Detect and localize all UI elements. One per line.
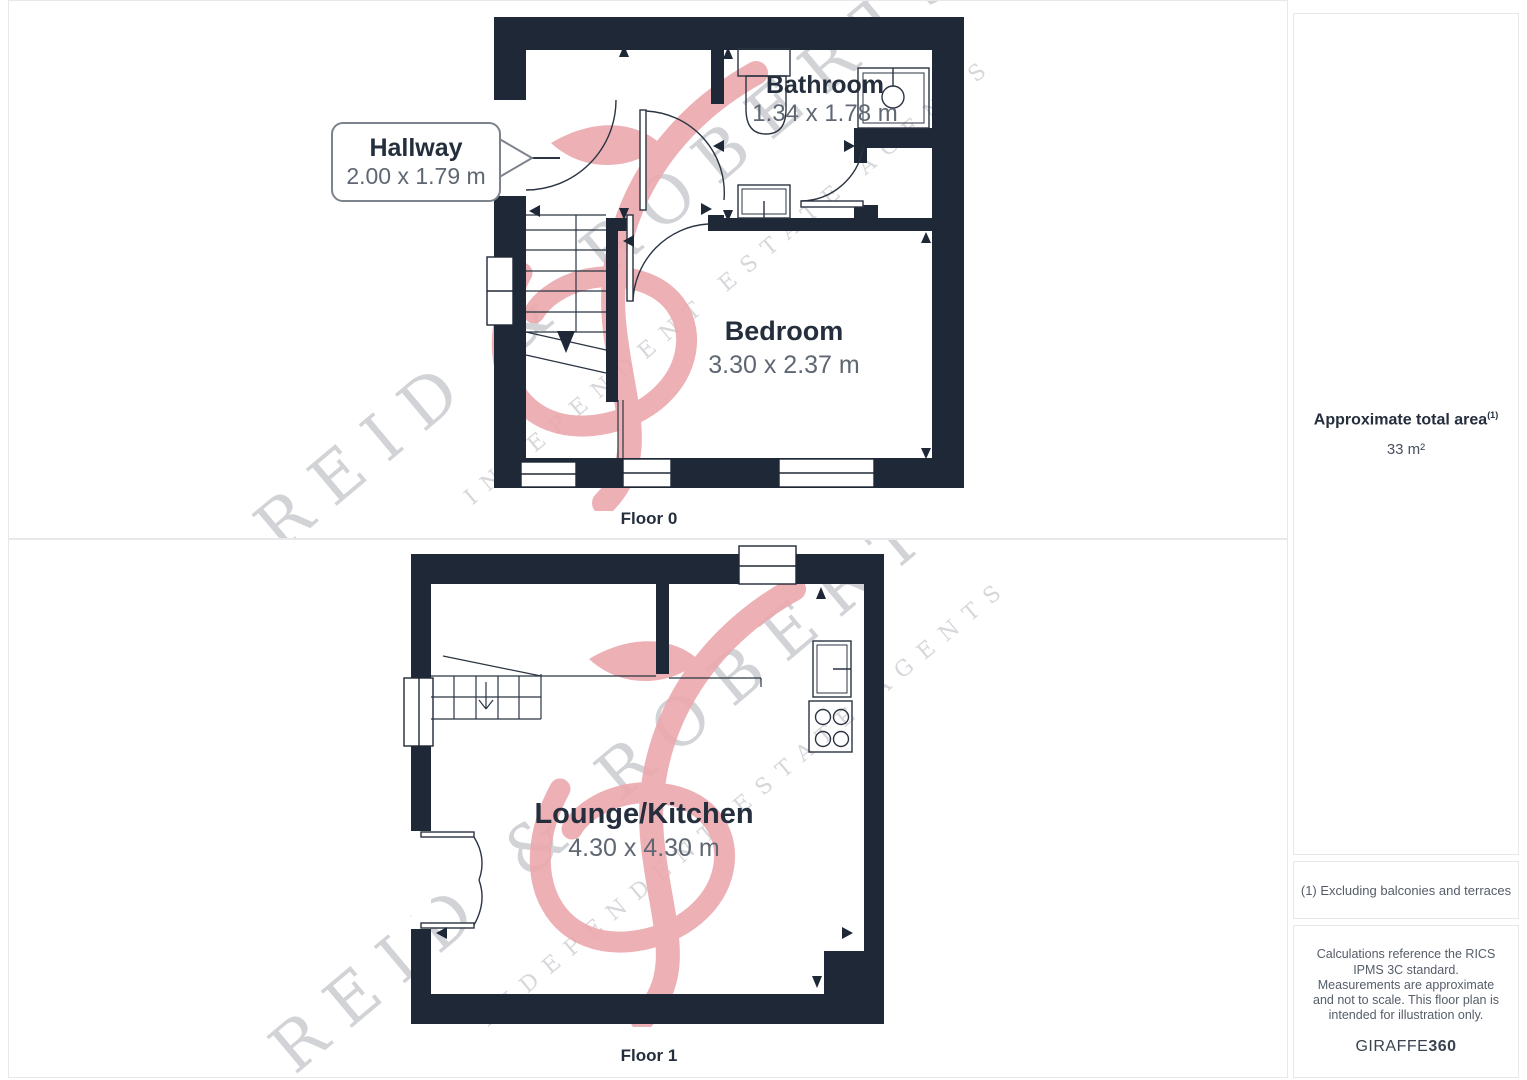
bathroom-door-leaf: [640, 110, 646, 210]
total-area-footnote-marker: (1): [1487, 410, 1498, 420]
french-door-arc: [474, 880, 482, 925]
window: [739, 546, 796, 584]
bathroom-label: Bathroom 1.34 x 1.78 m: [752, 71, 897, 128]
giraffe360-logo: GIRAFFE360: [1355, 1038, 1456, 1056]
floor1-details: [421, 641, 852, 928]
stairs: [431, 656, 761, 719]
closet-door-leaf: [801, 201, 863, 207]
footnote-section: (1) Excluding balconies and terraces: [1293, 861, 1519, 919]
hallway-callout: Hallway 2.00 x 1.79 m: [331, 122, 501, 202]
total-area-value: 33 m²: [1387, 441, 1425, 458]
floor1-walls: [411, 554, 884, 1024]
floorplan-page: REID & ROBERTS INDEPENDENT ESTATE AGENTS: [0, 0, 1527, 1080]
floor1-label: Floor 1: [621, 1046, 678, 1066]
brand-bold: 360: [1428, 1038, 1456, 1055]
disclaimer-text: Calculations reference the RICS IPMS 3C …: [1313, 947, 1499, 1023]
total-area-title: Approximate total area(1): [1314, 410, 1498, 429]
closet-door-arc: [801, 148, 863, 201]
room-dims: 2.00 x 1.79 m: [346, 163, 485, 189]
floor0-label: Floor 0: [621, 509, 678, 529]
total-area-section: Approximate total area(1) 33 m²: [1293, 13, 1519, 855]
bedroom-door-arc: [633, 224, 708, 301]
french-door-leaf: [421, 832, 474, 837]
bedroom-door-leaf: [627, 215, 633, 301]
floor0-panel: REID & ROBERTS INDEPENDENT ESTATE AGENTS: [8, 0, 1288, 539]
french-door-opening: [411, 831, 431, 929]
french-door-leaf: [421, 923, 474, 928]
french-door-arc: [474, 837, 482, 880]
total-area-label: Approximate total area: [1314, 412, 1487, 429]
room-name: Hallway: [369, 135, 462, 163]
floor1-arrows: [436, 587, 853, 988]
lounge-kitchen-label: Lounge/Kitchen 4.30 x 4.30 m: [534, 798, 753, 863]
footnote-text: (1) Excluding balconies and terraces: [1301, 883, 1511, 898]
floor1-panel: REID & ROBERTS INDEPENDENT ESTATE AGENTS: [8, 539, 1288, 1078]
bathroom-door-arc: [646, 111, 724, 200]
floor0-plan: [9, 1, 1288, 539]
entrance-door-arc: [526, 100, 616, 190]
brand-light: GIRAFFE: [1355, 1038, 1428, 1055]
bedroom-label: Bedroom 3.30 x 2.37 m: [708, 316, 859, 380]
disclaimer-section: Calculations reference the RICS IPMS 3C …: [1293, 925, 1519, 1078]
